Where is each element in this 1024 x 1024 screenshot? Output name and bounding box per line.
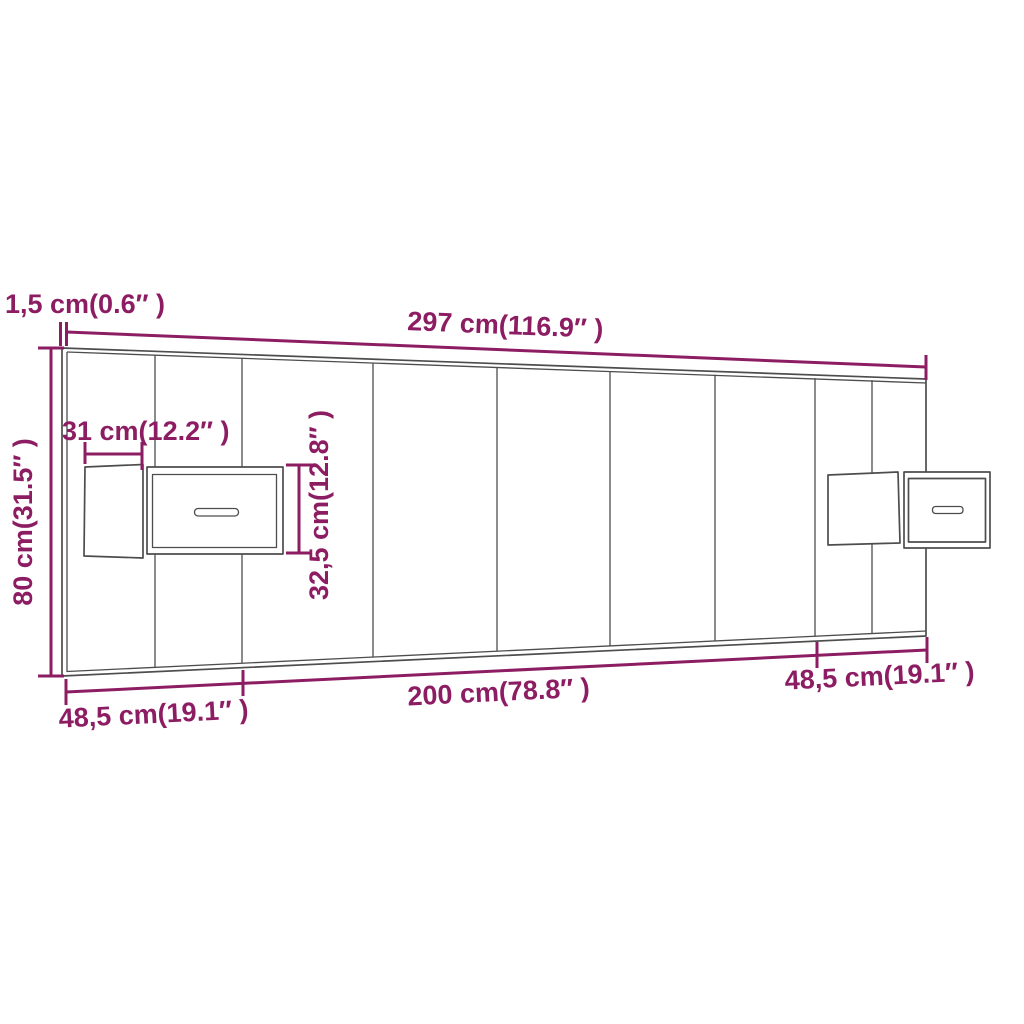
dim-label-left-section: 48,5 cm(19.1″ )	[58, 694, 249, 733]
dim-label-panel-thickness: 1,5 cm(0.6″ )	[5, 289, 165, 319]
dim-total-height: 80 cm(31.5″ )	[8, 348, 64, 676]
dim-bottom-chain: 48,5 cm(19.1″ ) 200 cm(78.8″ ) 48,5 cm(1…	[58, 637, 975, 734]
dim-total-width: 297 cm(116.9″ )	[67, 306, 927, 380]
dim-panel-thickness: 1,5 cm(0.6″ )	[5, 289, 165, 346]
dim-nightstand-depth: 31 cm(12.2″ )	[62, 416, 230, 470]
right-nightstand-front	[904, 472, 990, 548]
right-nightstand	[828, 472, 990, 548]
dim-label-nightstand-height: 32,5 cm(12.8″ )	[304, 410, 334, 600]
diagram-canvas: 1,5 cm(0.6″ ) 297 cm(116.9″ ) 80 cm(31.5…	[0, 0, 1024, 1024]
right-nightstand-side-panel	[828, 472, 900, 545]
dim-nightstand-height: 32,5 cm(12.8″ )	[286, 410, 334, 600]
left-nightstand-side-panel	[84, 465, 143, 559]
dim-label-center-section: 200 cm(78.8″ )	[407, 673, 591, 712]
dimension-diagram: 1,5 cm(0.6″ ) 297 cm(116.9″ ) 80 cm(31.5…	[0, 0, 1024, 1024]
dim-label-total-height: 80 cm(31.5″ )	[8, 438, 38, 606]
dim-label-total-width: 297 cm(116.9″ )	[407, 306, 604, 344]
dim-label-right-section: 48,5 cm(19.1″ )	[784, 656, 975, 695]
left-nightstand	[84, 465, 283, 559]
left-nightstand-front	[147, 467, 283, 554]
dim-label-nightstand-depth: 31 cm(12.2″ )	[62, 416, 230, 446]
